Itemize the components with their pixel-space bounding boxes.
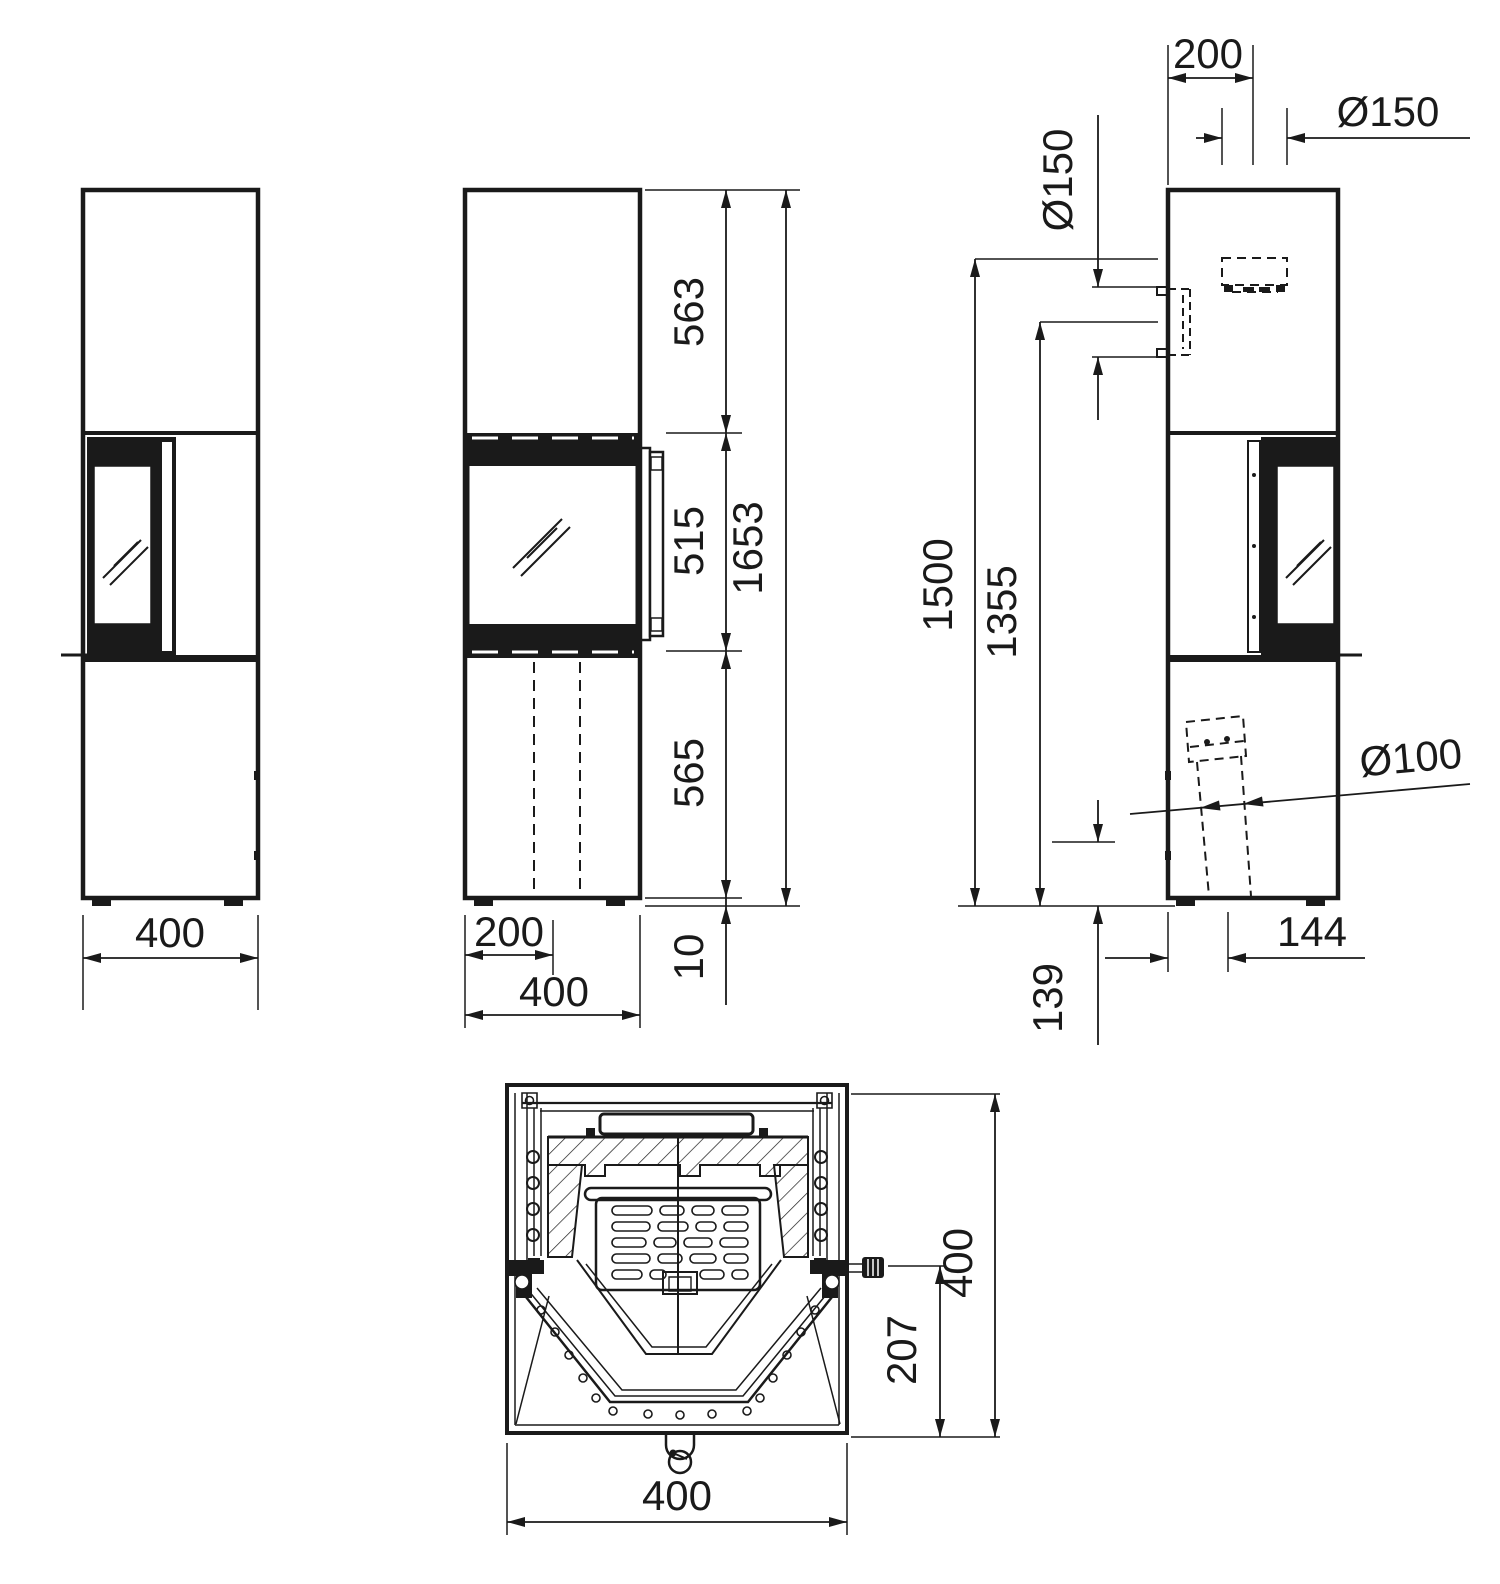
dim-front-half-width: 200 <box>474 908 544 955</box>
side-intake-dia-leader: Ø100 <box>1130 730 1470 814</box>
dim-side-flue-rear-height: 1355 <box>978 565 1025 658</box>
side-top-flue-outlet <box>1222 258 1287 292</box>
front-elevation-view: 563 515 565 10 1653 200 400 <box>465 190 800 1028</box>
side-intake-height-dim: 139 <box>1024 800 1115 1045</box>
side-flue-offset-dim: 200 <box>1168 30 1287 185</box>
dim-section-width: 400 <box>642 1472 712 1519</box>
left-side-glass <box>94 466 151 624</box>
section-rear-plates <box>522 1093 832 1137</box>
dim-side-flue-offset: 200 <box>1173 30 1243 77</box>
left-rear-pin-top <box>254 771 260 780</box>
section-width-dim: 400 <box>507 1443 847 1535</box>
dim-left-width: 400 <box>135 909 205 956</box>
left-foot-front <box>92 898 111 906</box>
side-foot-rear <box>1176 898 1195 906</box>
section-handle-knob <box>847 1257 884 1278</box>
side-height-dims: 1500 1355 <box>914 259 1175 906</box>
left-foot-rear <box>224 898 243 906</box>
side-rear-pin-bottom <box>1165 851 1171 860</box>
right-elevation-view: 200 Ø150 Ø150 1500 <box>914 30 1470 1045</box>
dim-front-seg-base: 10 <box>665 934 712 981</box>
side-intake-offset-dim: 144 <box>1105 908 1365 972</box>
left-width-dim: 400 <box>83 909 258 1010</box>
dim-side-flue-rear-dia: Ø150 <box>1034 129 1081 232</box>
front-height-dims: 563 515 565 10 1653 <box>645 190 800 1005</box>
left-rear-pin-bottom <box>254 851 260 860</box>
left-door-hinge-strip <box>161 441 173 652</box>
dim-front-width: 400 <box>519 968 589 1015</box>
left-elevation-view: 400 <box>61 190 260 1010</box>
dim-side-flue-top-height: 1500 <box>914 538 961 631</box>
front-width-dims: 200 400 <box>465 908 640 1028</box>
front-glass-reflection <box>513 519 570 576</box>
dim-section-handle-depth: 207 <box>878 1315 925 1385</box>
side-bottom-separator <box>1168 655 1338 662</box>
dim-front-seg-bottom: 565 <box>665 738 712 808</box>
front-glass-bottom-band <box>468 624 637 647</box>
intake-bolt-dot <box>1204 739 1210 745</box>
dim-front-total-height: 1653 <box>724 501 771 594</box>
section-door-latch <box>666 1433 694 1473</box>
side-flue-top-dia-dim: Ø150 <box>1196 88 1470 143</box>
dim-side-intake-offset: 144 <box>1277 908 1347 955</box>
dim-front-seg-top: 563 <box>665 277 712 347</box>
front-door-edge <box>641 448 663 640</box>
side-glass <box>1277 466 1334 624</box>
stove-technical-drawing: 400 <box>0 0 1500 1584</box>
intake-bolt-dot <box>1224 736 1230 742</box>
dim-side-intake-dia: Ø100 <box>1358 730 1464 786</box>
side-flue-rear-dia-dim: Ø150 <box>1034 115 1158 420</box>
dim-side-intake-height: 139 <box>1024 963 1071 1033</box>
front-foot-right <box>606 898 625 906</box>
dim-section-depth: 400 <box>934 1228 981 1298</box>
dim-side-flue-top-dia: Ø150 <box>1337 88 1440 135</box>
top-section-view: 400 207 400 <box>506 1085 1000 1535</box>
front-foot-left <box>474 898 493 906</box>
front-glass-top-band <box>468 444 637 466</box>
side-rear-pin-top <box>1165 771 1171 780</box>
left-bottom-separator <box>83 655 258 662</box>
drawing-page: 400 <box>0 0 1500 1584</box>
side-rear-flue-collar <box>1157 287 1190 357</box>
section-damper <box>600 1114 753 1134</box>
dim-front-seg-window: 515 <box>665 506 712 576</box>
side-foot-front <box>1306 898 1325 906</box>
